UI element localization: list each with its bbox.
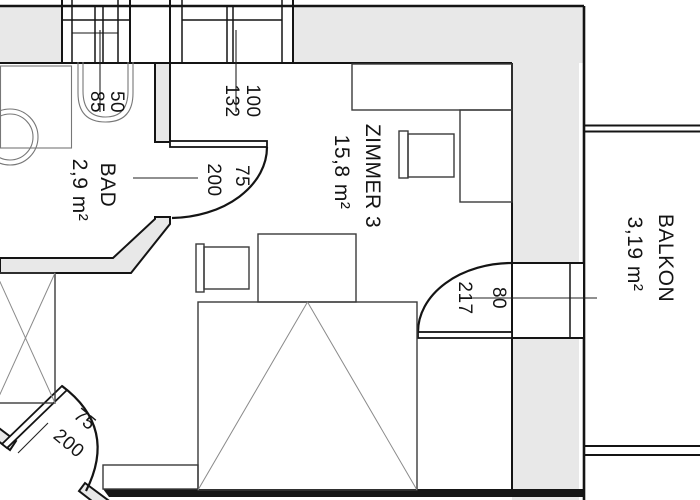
bathroom-fixtures <box>0 62 133 165</box>
zimmer3-room-area: 15,8 m² <box>330 135 353 210</box>
right-wall-upper <box>512 63 579 263</box>
toilet <box>0 109 38 165</box>
entry-door <box>2 386 98 491</box>
chair-back <box>399 131 408 178</box>
cabinet <box>103 465 198 489</box>
bad-door-height: 200 <box>203 163 224 196</box>
balcony-door-width: 80 <box>488 287 509 309</box>
balcony-door-height: 217 <box>454 281 475 314</box>
right-wall-lower <box>512 338 579 500</box>
floor-plan-canvas: BAD 2,9 m² ZIMMER 3 15,8 m² BALKON 3,19 … <box>0 0 700 500</box>
bad-room-area: 2,9 m² <box>68 159 91 222</box>
chair-seat <box>204 247 249 289</box>
balcony-door-threshold <box>512 263 584 338</box>
bed-outline <box>198 302 417 490</box>
wardrobe <box>0 273 55 403</box>
chair-seat <box>408 134 454 177</box>
table <box>258 234 356 302</box>
wardrobe-outline <box>0 273 55 403</box>
desk-chair <box>399 131 454 178</box>
bed-diagonal-line <box>308 302 418 490</box>
table-chair <box>196 244 249 292</box>
bad-window-height: 85 <box>86 91 107 113</box>
toilet-bowl <box>0 114 33 160</box>
bad-window <box>62 0 130 63</box>
shower-tray <box>1 66 72 148</box>
top-wall-right-segment <box>293 6 584 63</box>
zimmer-window-height: 132 <box>221 84 242 117</box>
balkon-room-area: 3,19 m² <box>623 217 646 292</box>
wardrobe-cross-line <box>0 273 55 403</box>
bad-door-width: 75 <box>231 165 252 187</box>
zimmer-window <box>170 0 293 63</box>
desk-top-section <box>352 64 512 110</box>
bad-room-name: BAD <box>96 163 119 208</box>
balkon-room-name: BALKON <box>654 214 677 302</box>
bad-door-leaf <box>170 141 267 147</box>
bad-wall-upper <box>155 63 170 142</box>
balcony-door-leaf <box>418 332 512 338</box>
zimmer3-room-name: ZIMMER 3 <box>361 124 384 228</box>
top-wall-left-segment <box>0 6 62 63</box>
floor-plan: BAD 2,9 m² ZIMMER 3 15,8 m² BALKON 3,19 … <box>0 0 700 500</box>
zimmer-window-width: 100 <box>242 84 263 117</box>
wardrobe-cross-line <box>0 273 55 403</box>
desk-side-section <box>460 110 512 202</box>
bed <box>198 302 417 490</box>
bad-wall-chamfer <box>0 217 170 273</box>
chair-back <box>196 244 204 292</box>
bad-window-width: 50 <box>106 91 127 113</box>
bed-diagonal-line <box>198 302 308 490</box>
